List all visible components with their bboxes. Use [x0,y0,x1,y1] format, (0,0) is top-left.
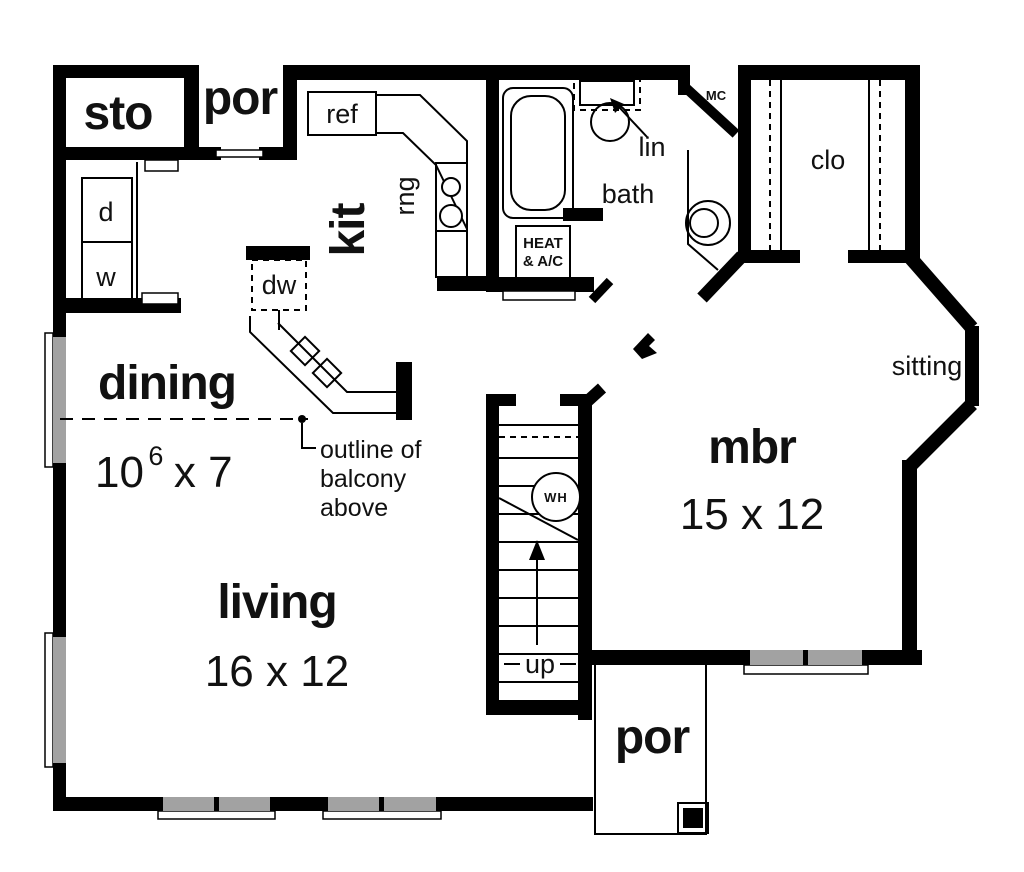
window-sill [323,811,441,819]
living-label: living [217,576,336,629]
heat-ac-unit [516,226,570,278]
bay-wall-upper [908,255,972,328]
floor-plan-drawing: sto por ref rng kit dw d w dining 10 6 x… [0,0,1024,872]
porch-top-bottom-stub-right [259,147,297,160]
bath-label: bath [602,179,655,209]
vanity [580,81,634,105]
heat-label-line1: HEAT [523,235,563,252]
balcony-counter-outer-edge [250,316,398,413]
dryer-label: d [98,197,113,227]
bathtub-inner [511,96,565,210]
balcony-note-line3: above [320,494,388,522]
dining-dimension: 10 6 x 7 [95,441,233,497]
bath-left-wall-lower [486,220,499,282]
stair-right-wall [578,405,592,720]
dining-label: dining [98,357,236,410]
heat-closet-bottom-wall [486,277,594,292]
counter-end-cap [396,362,412,420]
utility-vent-upper [145,160,178,171]
window-mullion [214,797,219,811]
door-swing-mark [592,281,610,300]
balcony-leader-dot [298,415,306,423]
balcony-note-line1: outline of [320,436,422,464]
sto-bottom-wall [53,147,199,160]
toilet-bowl [686,201,730,245]
window-mullion [803,650,808,665]
stair-left-wall [486,405,499,715]
right-wall-lower [902,460,917,660]
bay-wall-vertical [965,326,979,406]
toilet-seat [690,209,718,237]
heat-closet-grille [503,291,575,300]
left-window-upper [53,337,66,463]
clo-bottom-stub-left [738,250,800,263]
utility-vent-lower [142,293,178,304]
bottom-wall [53,797,593,811]
living-dimension: 16 x 12 [205,647,349,696]
tub-right-stub [563,208,603,221]
clo-top-wall [738,65,920,80]
clo-left-wall [738,78,751,256]
clo-label: clo [811,145,846,175]
por-top-label: por [203,72,278,125]
window-mullion [379,797,384,811]
floor-plan-page: sto por ref rng kit dw d w dining 10 6 x… [0,0,1024,872]
water-heater-label: WH [544,490,568,505]
stair-top-diagonal-stub [580,388,602,408]
por-bottom-label: por [615,711,690,764]
balcony-note-line2: balcony [320,465,407,493]
door-arrow-mark [633,333,657,359]
clo-right-wall [905,65,920,257]
bay-wall-lower [910,404,972,466]
kit-bath-divider-wall [486,65,499,225]
window-sill [158,811,275,819]
sto-right-wall [184,65,199,160]
staircase [499,425,580,682]
sto-label: sto [84,87,153,140]
stair-top-stub-left [486,394,516,406]
kit-label: kit [322,202,375,256]
window-sill [744,665,868,674]
mbr-dimension: 15 x 12 [680,490,824,539]
washer-label: w [95,262,116,292]
range-burner [440,205,462,227]
mc-label: MC [706,88,727,103]
sitting-label: sitting [892,351,963,381]
range-bottom-stub [437,276,492,291]
window-sill [45,333,53,467]
lin-label: lin [638,132,665,162]
range-burner [442,178,460,196]
rng-label: rng [390,176,420,215]
porch-post [683,808,703,828]
left-window-lower [53,637,66,763]
dw-top-wall [246,246,310,260]
dw-label: dw [262,270,297,300]
porch-top-door-sill [216,150,263,157]
balcony-outline [60,415,316,448]
balcony-leader-bracket [302,423,316,448]
window-sill [45,633,53,767]
mbr-label: mbr [708,421,796,474]
ref-label: ref [326,99,358,129]
porch-top-right-wall [283,65,297,160]
sto-top-wall [53,65,199,78]
lavatory-sink [591,103,629,141]
heat-label-line2: & A/C [523,253,563,270]
stair-bottom-wall [486,700,592,715]
up-label: up [525,649,555,679]
